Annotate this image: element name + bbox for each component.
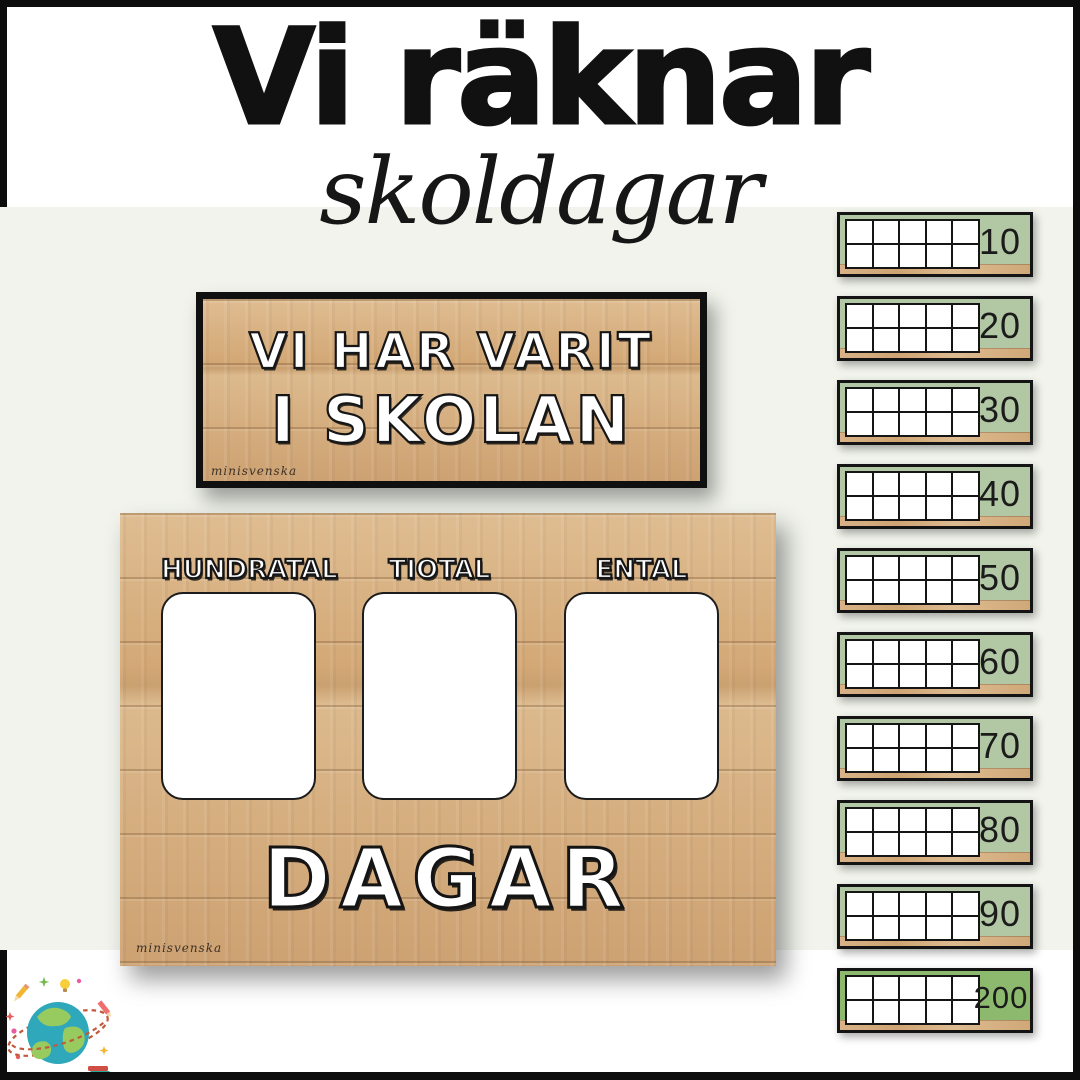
ten-frame-grid xyxy=(845,303,980,353)
column-label-ones: ENTAL xyxy=(564,557,719,583)
board-caption: DAGAR xyxy=(120,839,776,921)
ten-frame-cell xyxy=(847,809,872,831)
sign-watermark: minisvenska xyxy=(211,464,297,478)
ten-frame-card-20: 20 xyxy=(837,296,1033,361)
ten-frame-cell xyxy=(900,1001,925,1023)
ten-frame-cell xyxy=(900,917,925,939)
ten-frame-cell xyxy=(847,557,872,579)
ten-frame-cell xyxy=(927,497,952,519)
ten-frame-cell xyxy=(874,413,899,435)
ten-frame-cell xyxy=(847,329,872,351)
ten-frame-grid xyxy=(845,807,980,857)
lightbulb-icon xyxy=(60,979,70,992)
ten-frame-cell xyxy=(927,305,952,327)
column-label-tens: TIOTAL xyxy=(362,557,517,583)
ten-frame-card-40: 40 xyxy=(837,464,1033,529)
ten-frame-grid xyxy=(845,723,980,773)
star-icon xyxy=(100,1046,109,1055)
card-number: 50 xyxy=(973,551,1027,604)
ten-frame-cell xyxy=(927,245,952,267)
ten-frame-cell xyxy=(900,557,925,579)
wooden-sign: VI HAR VARIT I SKOLAN minisvenska xyxy=(196,292,707,488)
ten-frame-cell xyxy=(927,749,952,771)
card-number: 30 xyxy=(973,383,1027,436)
ten-frame-cell xyxy=(900,581,925,603)
ten-frame-cell xyxy=(874,725,899,747)
ten-frame-cell xyxy=(900,725,925,747)
ten-frame-cell xyxy=(900,329,925,351)
ten-frame-cell xyxy=(847,977,872,999)
ten-frame-cell xyxy=(874,329,899,351)
frame-edge-bottom xyxy=(0,1072,1080,1080)
ten-frame-card-80: 80 xyxy=(837,800,1033,865)
ten-frame-cell xyxy=(927,893,952,915)
ten-frame-cell xyxy=(874,665,899,687)
board-watermark: minisvenska xyxy=(136,941,222,955)
ten-frame-cell xyxy=(900,749,925,771)
column-label-hundreds: HUNDRATAL xyxy=(161,557,316,583)
page-subtitle: skoldagar xyxy=(0,146,1080,238)
ten-frame-cell xyxy=(900,413,925,435)
ten-frame-grid xyxy=(845,891,980,941)
ten-frame-cell xyxy=(847,641,872,663)
ten-frame-cell xyxy=(847,473,872,495)
ten-frame-cell xyxy=(874,977,899,999)
ten-frame-cell xyxy=(874,245,899,267)
product-cover: Vi räknar skoldagar VI HAR VARIT I SKOLA… xyxy=(0,0,1080,1080)
ten-frame-cell xyxy=(847,893,872,915)
card-number: 20 xyxy=(973,299,1027,352)
ten-frame-grid xyxy=(845,387,980,437)
ten-frame-cell xyxy=(847,245,872,267)
ten-frame-card-200: 200 xyxy=(837,968,1033,1033)
ten-frame-cell xyxy=(927,581,952,603)
sign-line-1: VI HAR VARIT xyxy=(249,327,654,376)
ten-frame-card-60: 60 xyxy=(837,632,1033,697)
ten-frame-cell xyxy=(927,833,952,855)
ten-frame-cell xyxy=(927,725,952,747)
ten-frame-cell xyxy=(900,665,925,687)
ten-frame-cell xyxy=(927,557,952,579)
ten-frame-card-50: 50 xyxy=(837,548,1033,613)
ten-frame-cell xyxy=(927,665,952,687)
pencil-icon-2 xyxy=(97,1000,113,1018)
ten-frame-card-90: 90 xyxy=(837,884,1033,949)
ten-frame-cell xyxy=(874,893,899,915)
ten-frame-cell xyxy=(847,725,872,747)
ten-frame-cell xyxy=(847,305,872,327)
ten-frame-grid xyxy=(845,975,980,1025)
tens-card-slot xyxy=(362,592,517,800)
card-number: 40 xyxy=(973,467,1027,520)
ten-frame-cell xyxy=(874,389,899,411)
ten-frame-cell xyxy=(874,473,899,495)
page-title: Vi räknar xyxy=(0,12,1080,144)
ten-frame-cell xyxy=(927,809,952,831)
column-ones: ENTAL xyxy=(564,557,719,800)
ten-frame-cell xyxy=(900,473,925,495)
ten-frame-cell xyxy=(900,977,925,999)
ten-frame-cell xyxy=(927,917,952,939)
card-number: 70 xyxy=(973,719,1027,772)
earth xyxy=(27,1002,89,1064)
ten-frame-cell xyxy=(927,389,952,411)
ten-frame-cell xyxy=(927,329,952,351)
ten-frame-card-column: 10 20 30 40 50 60 70 xyxy=(837,212,1033,1052)
ten-frame-cell xyxy=(900,893,925,915)
ten-frame-grid xyxy=(845,639,980,689)
ten-frame-cell xyxy=(847,917,872,939)
ten-frame-cell xyxy=(874,917,899,939)
ten-frame-cell xyxy=(927,1001,952,1023)
ten-frame-cell xyxy=(874,833,899,855)
ten-frame-cell xyxy=(900,305,925,327)
ten-frame-cell xyxy=(847,1001,872,1023)
pencil-icon xyxy=(12,984,29,1003)
ten-frame-cell xyxy=(874,497,899,519)
ten-frame-cell xyxy=(900,497,925,519)
ten-frame-grid xyxy=(845,471,980,521)
star-icon xyxy=(39,977,50,987)
ten-frame-cell xyxy=(900,833,925,855)
ten-frame-cell xyxy=(927,473,952,495)
ten-frame-cell xyxy=(847,413,872,435)
ten-frame-cell xyxy=(900,641,925,663)
ten-frame-cell xyxy=(900,245,925,267)
column-hundreds: HUNDRATAL xyxy=(161,557,316,800)
column-tens: TIOTAL xyxy=(362,557,517,800)
ten-frame-card-70: 70 xyxy=(837,716,1033,781)
card-number: 200 xyxy=(972,971,1030,1024)
card-number: 60 xyxy=(973,635,1027,688)
ten-frame-cell xyxy=(874,809,899,831)
ten-frame-cell xyxy=(900,809,925,831)
ten-frame-cell xyxy=(847,497,872,519)
sign-line-2: I SKOLAN xyxy=(271,389,632,453)
ten-frame-cell xyxy=(874,557,899,579)
ten-frame-cell xyxy=(847,749,872,771)
ten-frame-cell xyxy=(874,641,899,663)
ten-frame-grid xyxy=(845,555,980,605)
card-number: 90 xyxy=(973,887,1027,940)
card-number: 80 xyxy=(973,803,1027,856)
ten-frame-cell xyxy=(847,833,872,855)
ones-card-slot xyxy=(564,592,719,800)
ten-frame-cell xyxy=(900,389,925,411)
ten-frame-cell xyxy=(847,389,872,411)
ten-frame-cell xyxy=(874,305,899,327)
ten-frame-cell xyxy=(927,977,952,999)
ten-frame-cell xyxy=(874,1001,899,1023)
ten-frame-cell xyxy=(927,413,952,435)
ten-frame-cell xyxy=(874,749,899,771)
place-value-board: HUNDRATAL TIOTAL ENTAL DAGAR minisvenska xyxy=(120,513,776,966)
ten-frame-cell xyxy=(874,581,899,603)
ten-frame-cell xyxy=(927,641,952,663)
ten-frame-cell xyxy=(847,581,872,603)
hundreds-card-slot xyxy=(161,592,316,800)
ten-frame-cell xyxy=(847,665,872,687)
frame-edge-top xyxy=(0,0,1080,7)
frame-edge-right xyxy=(1073,0,1080,1080)
star-icon xyxy=(6,1012,15,1021)
globe-icon xyxy=(4,976,116,1080)
ten-frame-card-30: 30 xyxy=(837,380,1033,445)
